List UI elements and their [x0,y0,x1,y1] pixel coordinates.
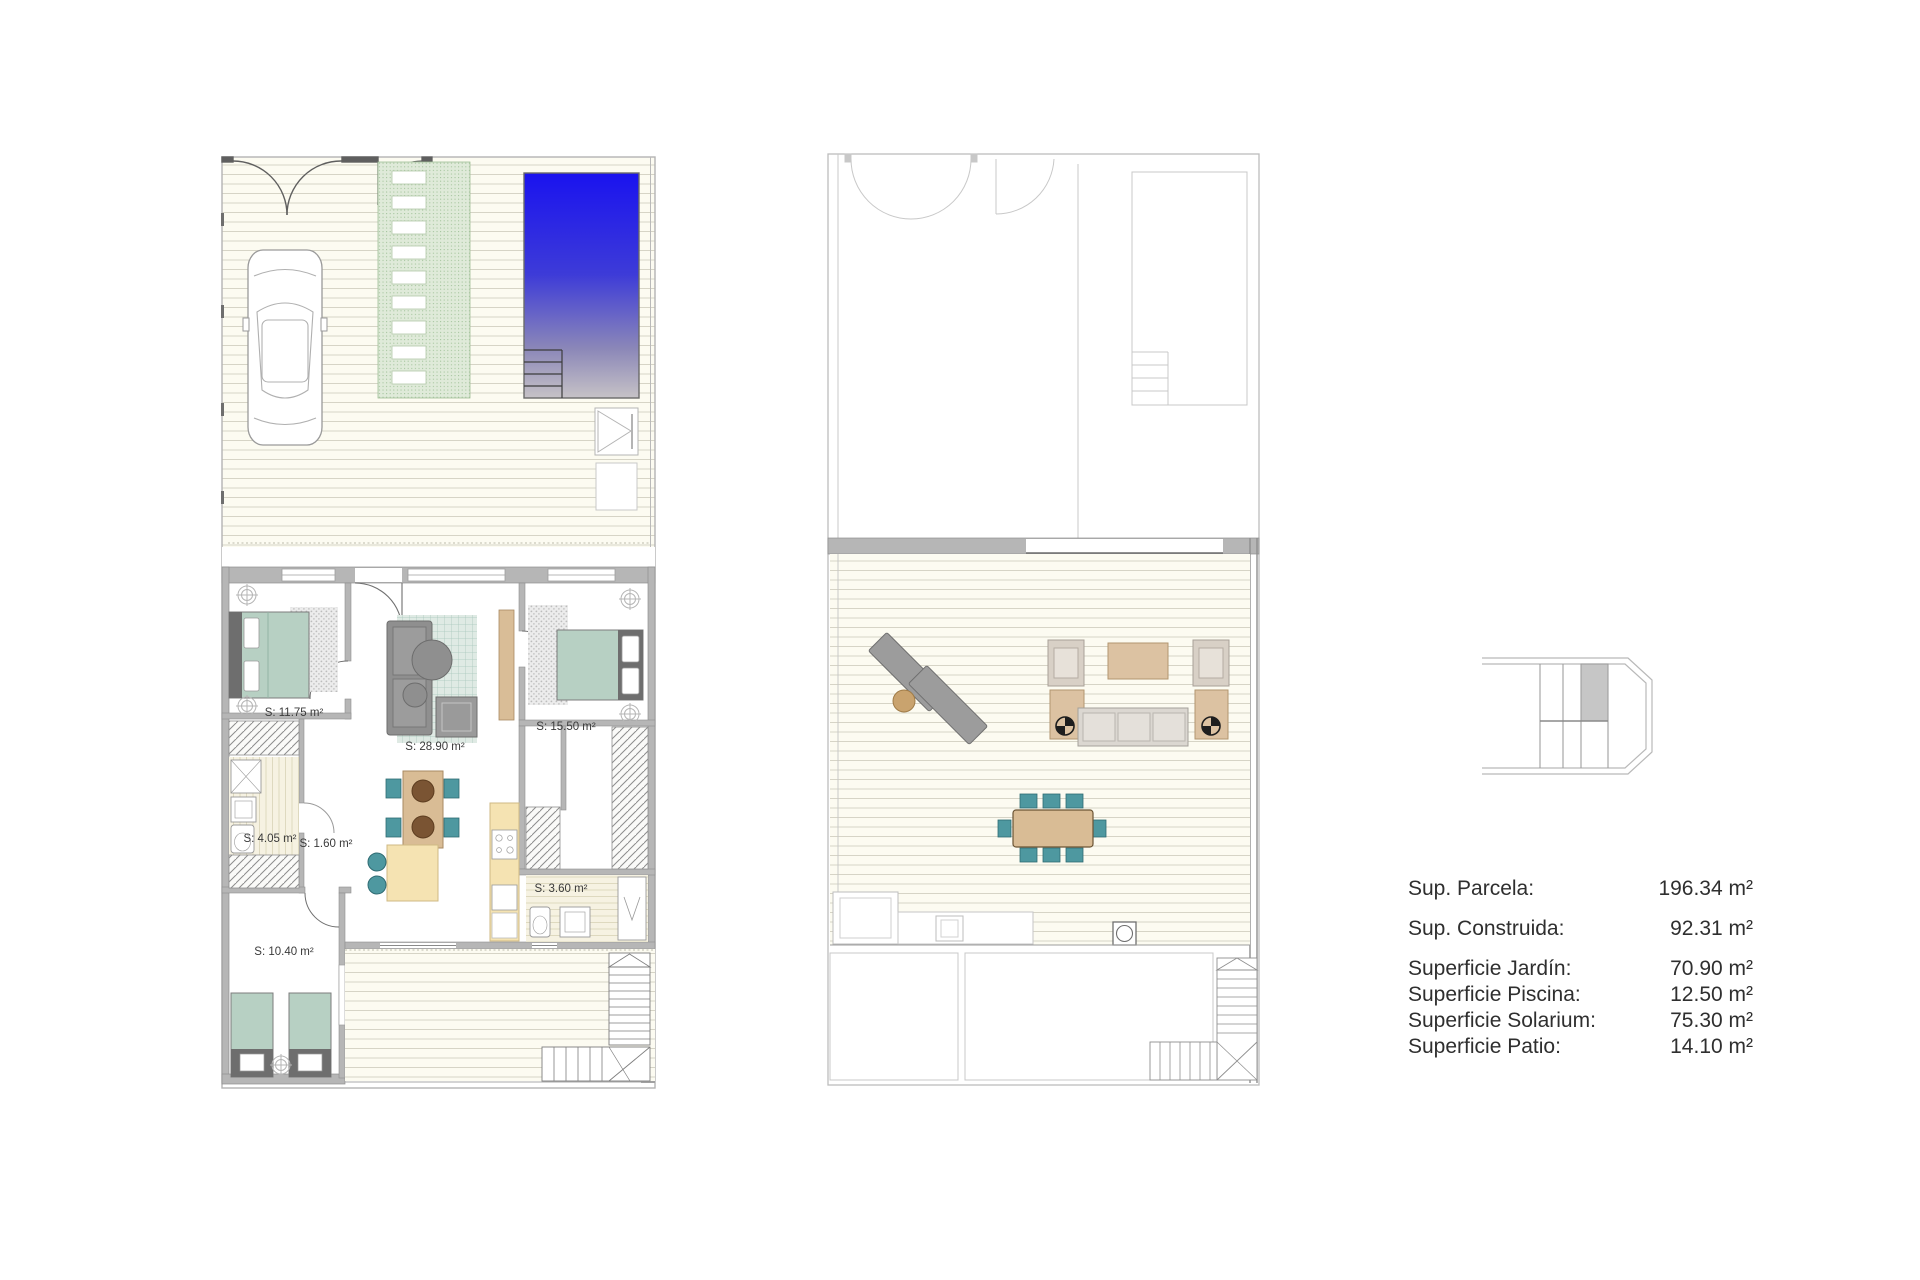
legend-value: 92.31 m² [1670,916,1753,942]
dining-set-icon [368,771,459,901]
shower-icon [618,877,646,940]
closet-icon [229,855,299,888]
surface-legend: Sup. Parcela: 196.34 m² Sup. Construida:… [1408,876,1753,1060]
floorplan-sheet: S: 11.75 m² S: 28.90 m² S: 15.50 m² S: 4… [0,0,1920,1280]
legend-value: 196.34 m² [1658,876,1753,902]
window-icon [339,965,345,1025]
double-bed-icon [557,630,643,700]
parasol-base-icon [1202,717,1220,735]
side-table-icon [893,690,915,712]
kitchen-counter-icon [490,803,519,941]
legend-label: Sup. Parcela: [1408,876,1534,902]
solarium-deck [830,554,1250,945]
legend-row: Superficie Patio: 14.10 m² [1408,1034,1753,1060]
room-label-bathroom-2: S: 3.60 m² [534,883,587,895]
legend-label: Sup. Construida: [1408,916,1564,942]
legend-value: 75.30 m² [1670,1008,1753,1034]
room-label-bathroom-1: S: 4.05 m² [243,833,296,845]
sideboard-icon [499,610,514,720]
legend-row: Superficie Solarium: 75.30 m² [1408,1008,1753,1034]
legend-label: Superficie Piscina: [1408,982,1581,1008]
front-door-opening [355,568,402,582]
drain-icon [1113,922,1136,945]
closet-icon [612,727,648,869]
bedroom-2 [528,588,643,725]
hob-icon [492,830,517,859]
bedroom-3 [231,965,345,1077]
legend-row: Sup. Parcela: 196.34 m² [1408,876,1753,902]
ghost-room [830,953,958,1080]
solarium-floor-plan [826,152,1266,1088]
stepping-path [378,162,470,398]
closet-icon [229,721,299,755]
legend-value: 70.90 m² [1670,956,1753,982]
room-label-bedroom-3: S: 10.40 m² [254,946,313,958]
legend-row: Sup. Construida: 92.31 m² [1408,916,1753,942]
legend-label: Superficie Patio: [1408,1034,1561,1060]
kitchen-dining [368,771,519,941]
island-icon [387,845,438,901]
bedroom-1 [229,584,338,717]
double-bed-icon [229,612,309,698]
coffee-table-icon [1108,643,1168,679]
pool [524,173,639,398]
bathroom-1 [229,721,299,888]
room-label-living: S: 28.90 m² [405,741,464,753]
room-label-bedroom-1: S: 11.75 m² [265,707,324,719]
patio-deck [345,949,655,1082]
bathroom-2 [526,727,648,942]
legend-label: Superficie Jardín: [1408,956,1571,982]
legend-row: Superficie Jardín: 70.90 m² [1408,956,1753,982]
living-room [387,610,514,743]
legend-row: Superficie Piscina: 12.50 m² [1408,982,1753,1008]
key-plan [1482,650,1682,790]
sofa-icon [1078,708,1188,746]
window-icon [282,569,615,581]
room-label-hall: S: 1.60 m² [299,838,352,850]
closet-icon [526,807,560,869]
sink-icon [492,885,517,910]
legend-value: 12.50 m² [1670,982,1753,1008]
room-label-bedroom-2: S: 15.50 m² [536,721,595,733]
unit-highlight [1581,664,1608,721]
car-icon [243,250,327,445]
parasol-base-icon [1056,717,1074,735]
legend-value: 14.10 m² [1670,1034,1753,1060]
legend-label: Superficie Solarium: [1408,1008,1596,1034]
side-table-icon [1195,690,1228,739]
